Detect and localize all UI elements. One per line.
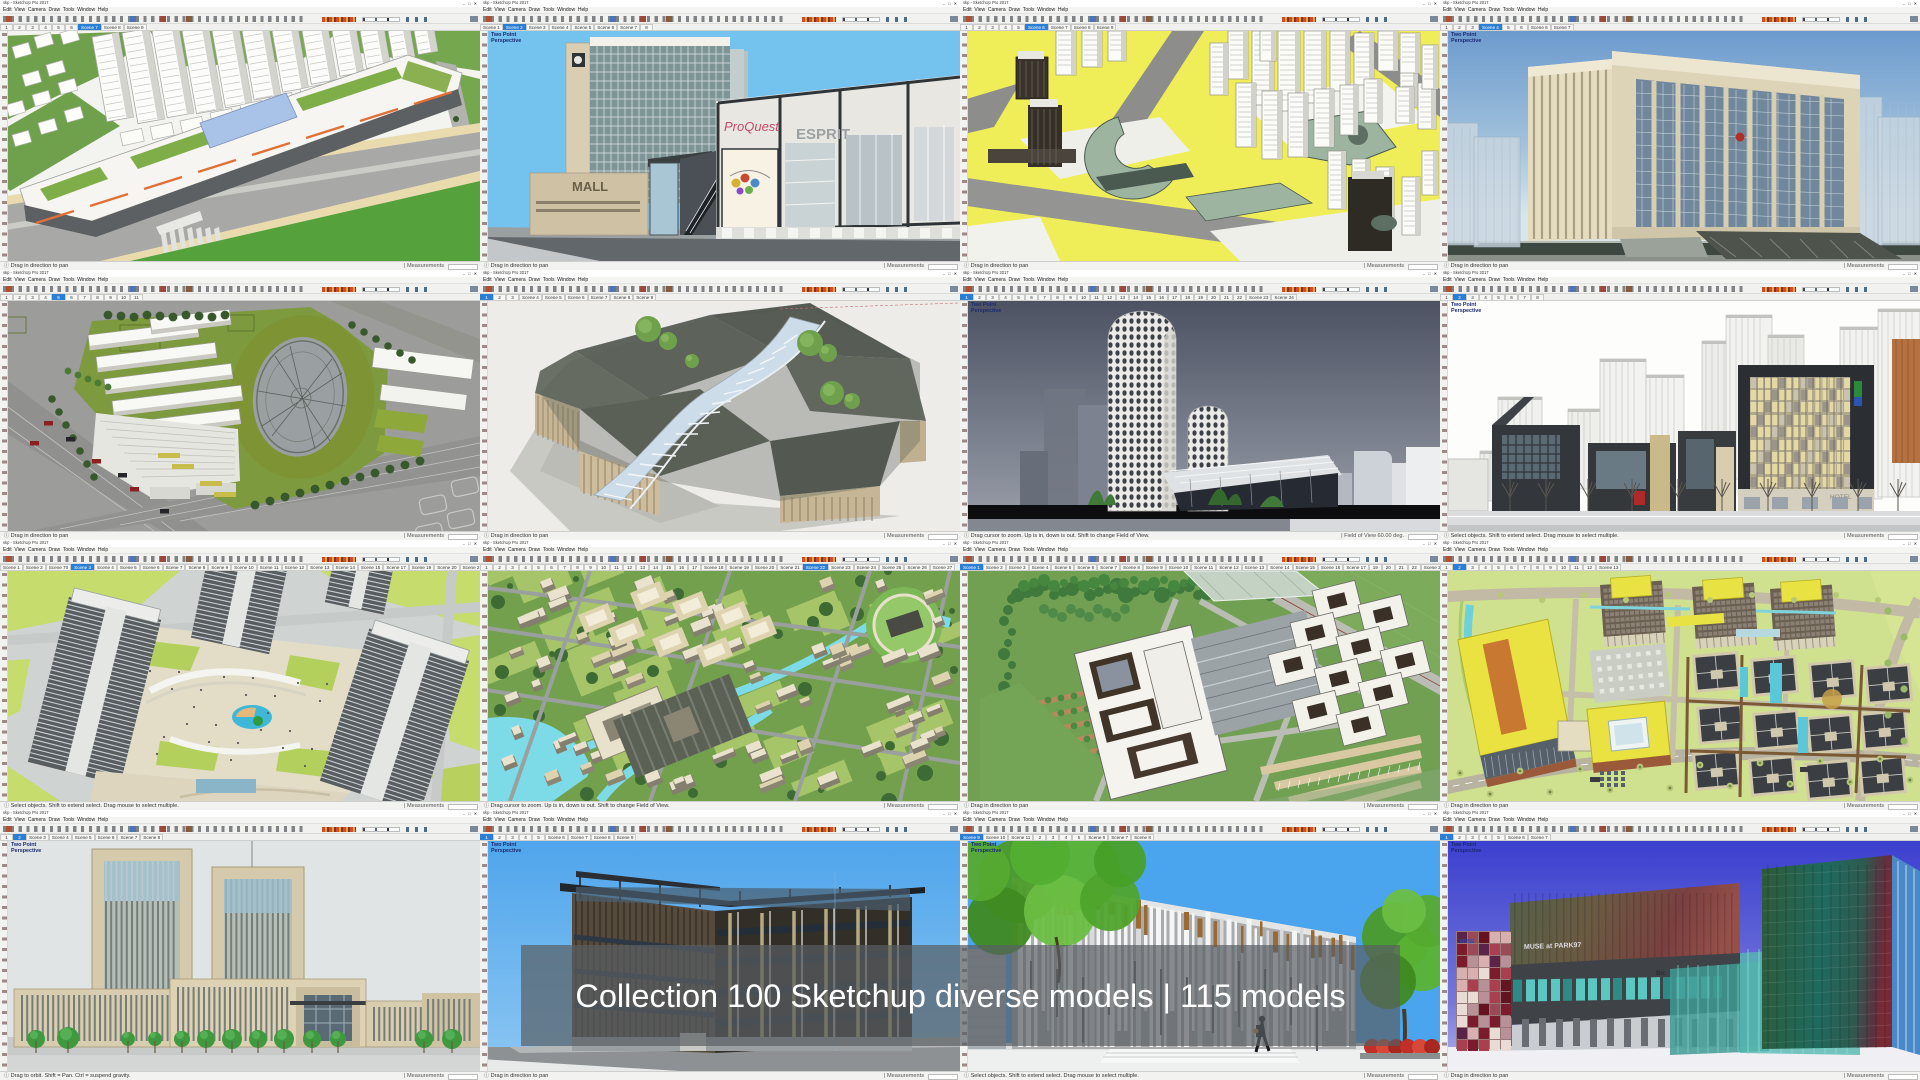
svg-text:MUSE: MUSE <box>1460 939 1475 945</box>
svg-text:MALL: MALL <box>572 179 608 194</box>
svg-text:Bo:: Bo: <box>1656 971 1666 977</box>
svg-text:ProQuest: ProQuest <box>724 119 780 134</box>
svg-text:ESPRIT: ESPRIT <box>796 126 850 143</box>
